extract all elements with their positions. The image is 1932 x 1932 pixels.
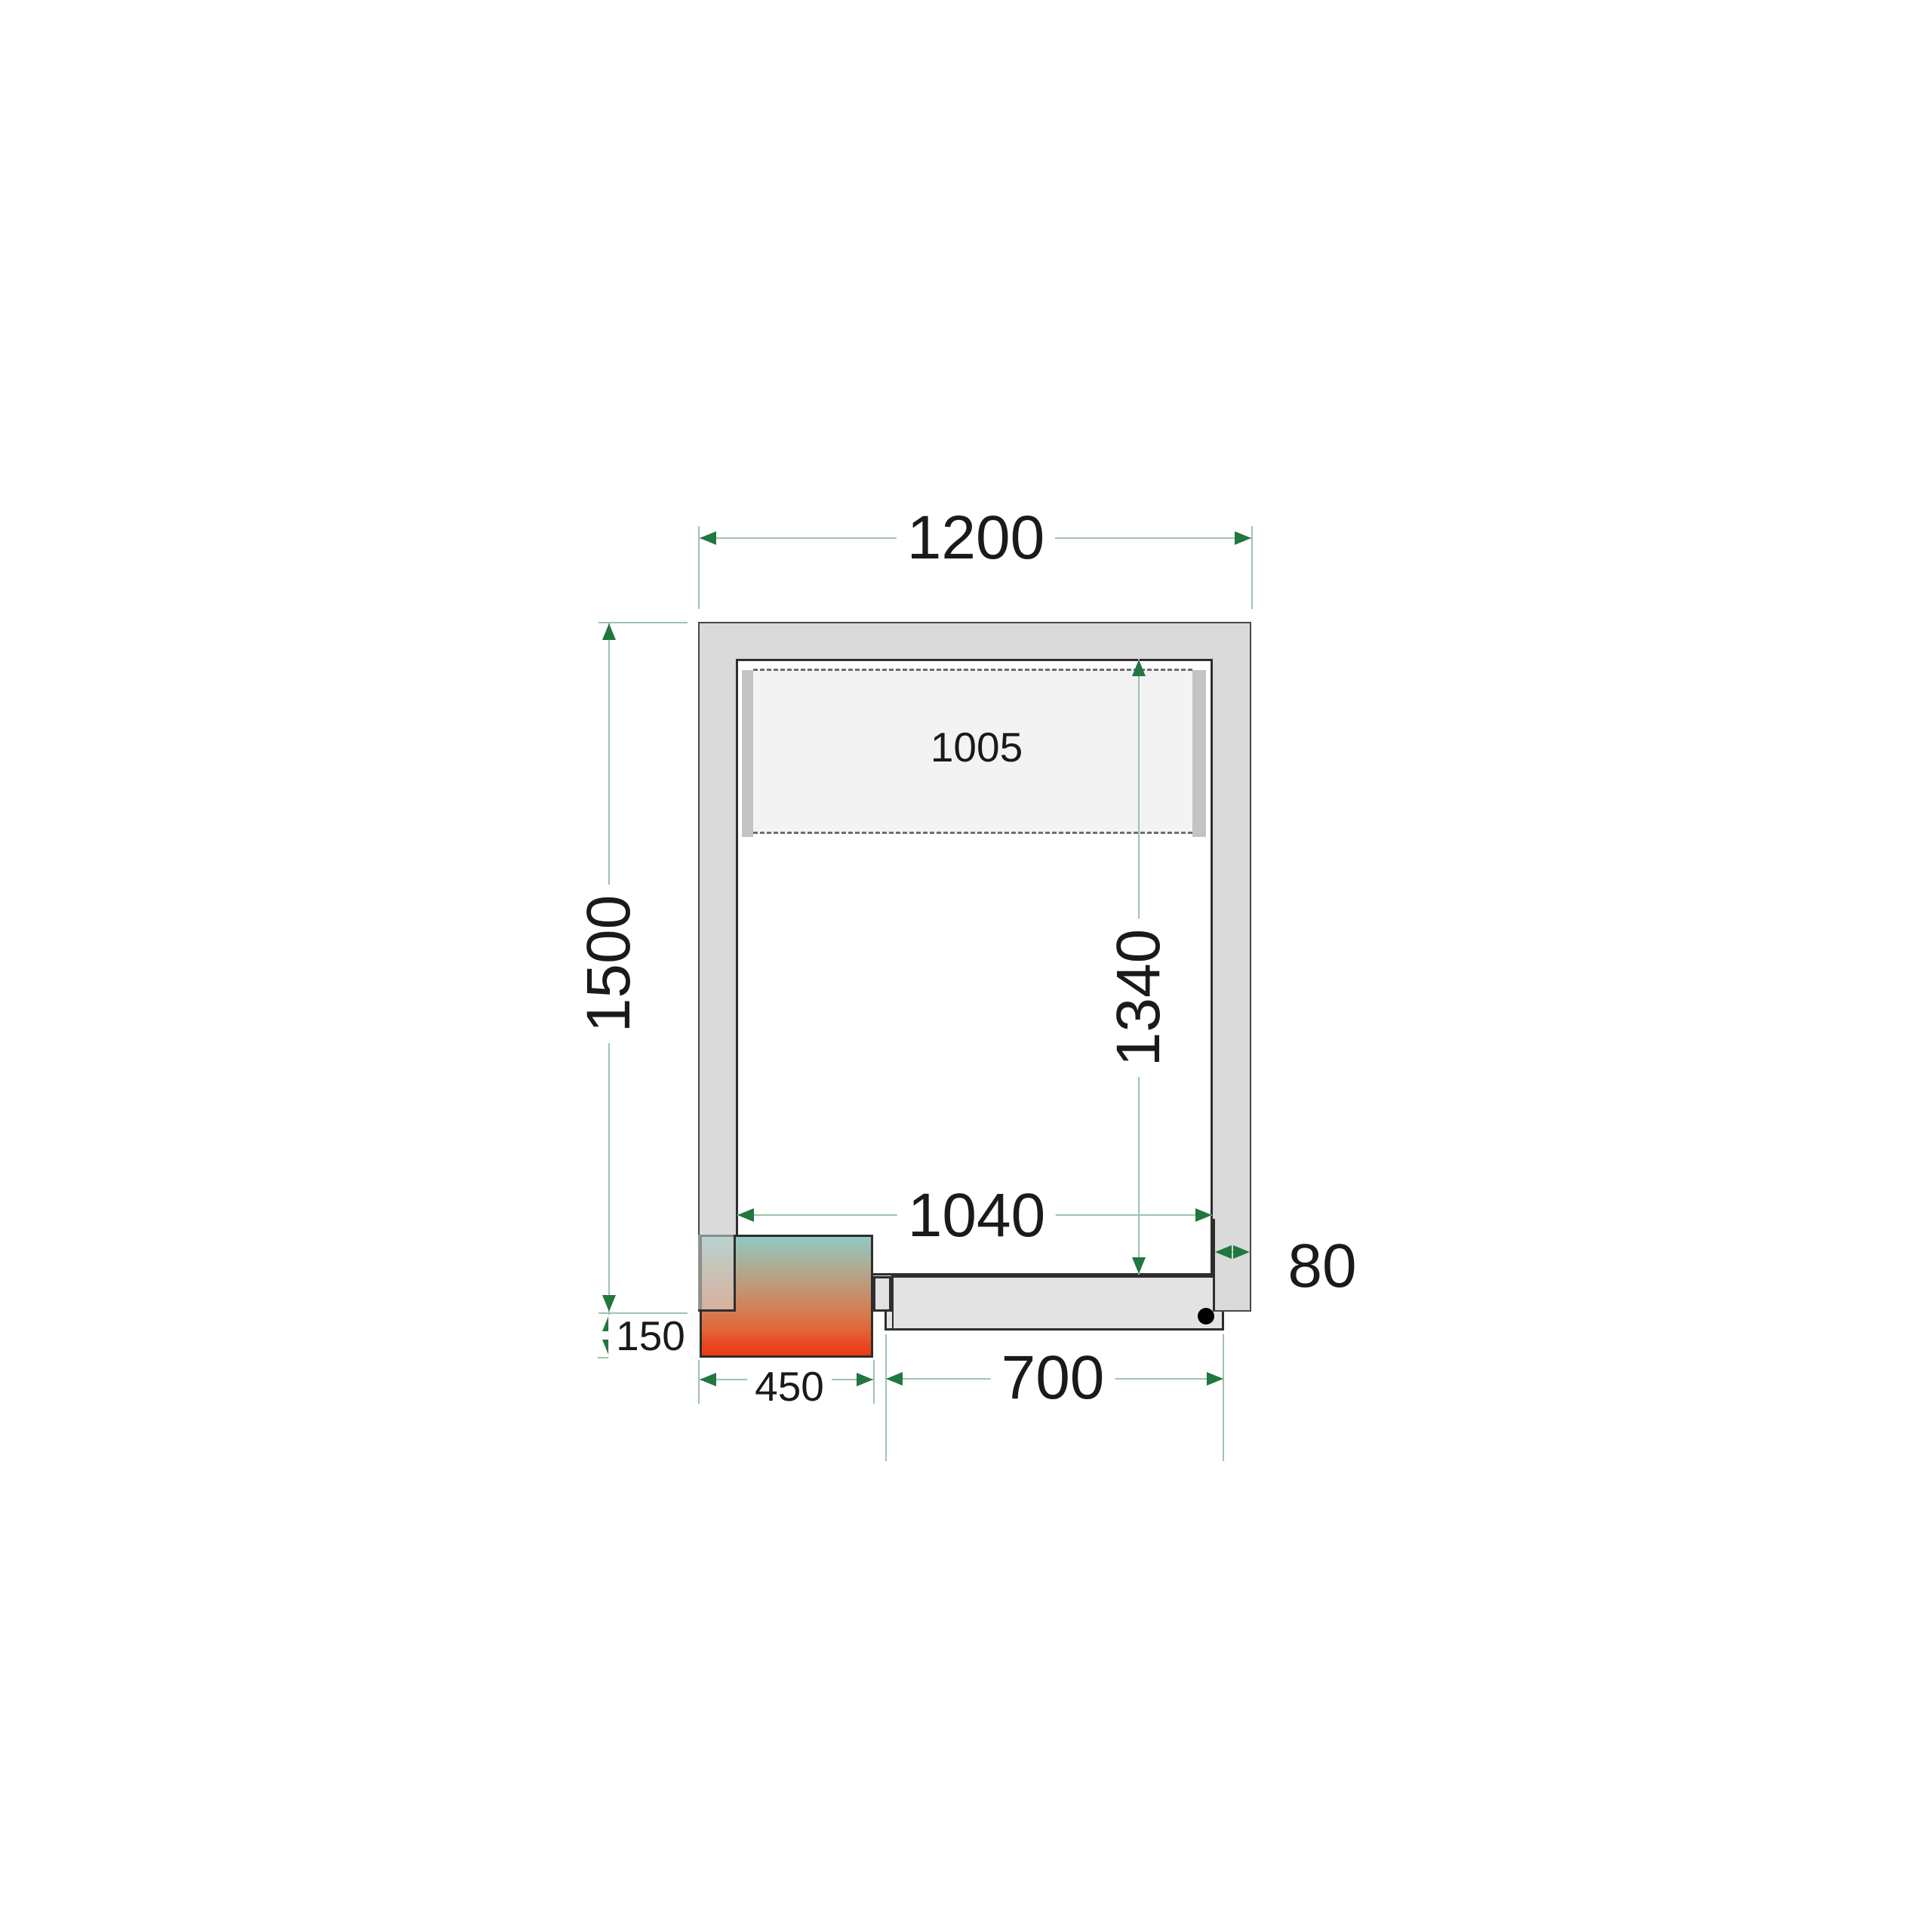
right-wall-lower (1213, 1219, 1251, 1312)
door-leaf-step (884, 1312, 892, 1331)
door-hinge-dot (1198, 1308, 1214, 1324)
dimension-label-unit-protrusion: 150 (608, 1315, 693, 1358)
dimension-label-inner-width: 1040 (897, 1183, 1056, 1248)
arrow-up (602, 623, 616, 640)
floor-plan-canvas: 1200 1500 1340 1040 80 150 450 700 1005 (0, 0, 1932, 1932)
arrow-right (857, 1373, 873, 1386)
dimension-label-wall-thickness: 80 (1277, 1234, 1367, 1299)
wall-over-cooling-unit (698, 1235, 736, 1312)
arrow-left (700, 531, 716, 545)
arrow-down (602, 1295, 616, 1312)
arrow-right (1207, 1372, 1223, 1386)
dimension-label-unit-width: 450 (747, 1365, 832, 1409)
dimension-label-outer-depth: 1500 (577, 884, 641, 1043)
dimension-label-shelf-width: 1005 (931, 726, 1023, 770)
door-frame-stub (873, 1276, 891, 1312)
arrow-left (700, 1373, 716, 1386)
shelf-rail-left (742, 670, 753, 837)
arrow-right (1235, 531, 1251, 545)
door-leaf (891, 1275, 1224, 1331)
arrow-left (886, 1372, 903, 1386)
dimension-label-inner-depth: 1340 (1106, 918, 1171, 1077)
dimension-label-door-width: 700 (991, 1346, 1115, 1411)
shelf-rail-right (1192, 670, 1206, 837)
dimension-label-outer-width: 1200 (897, 506, 1055, 571)
